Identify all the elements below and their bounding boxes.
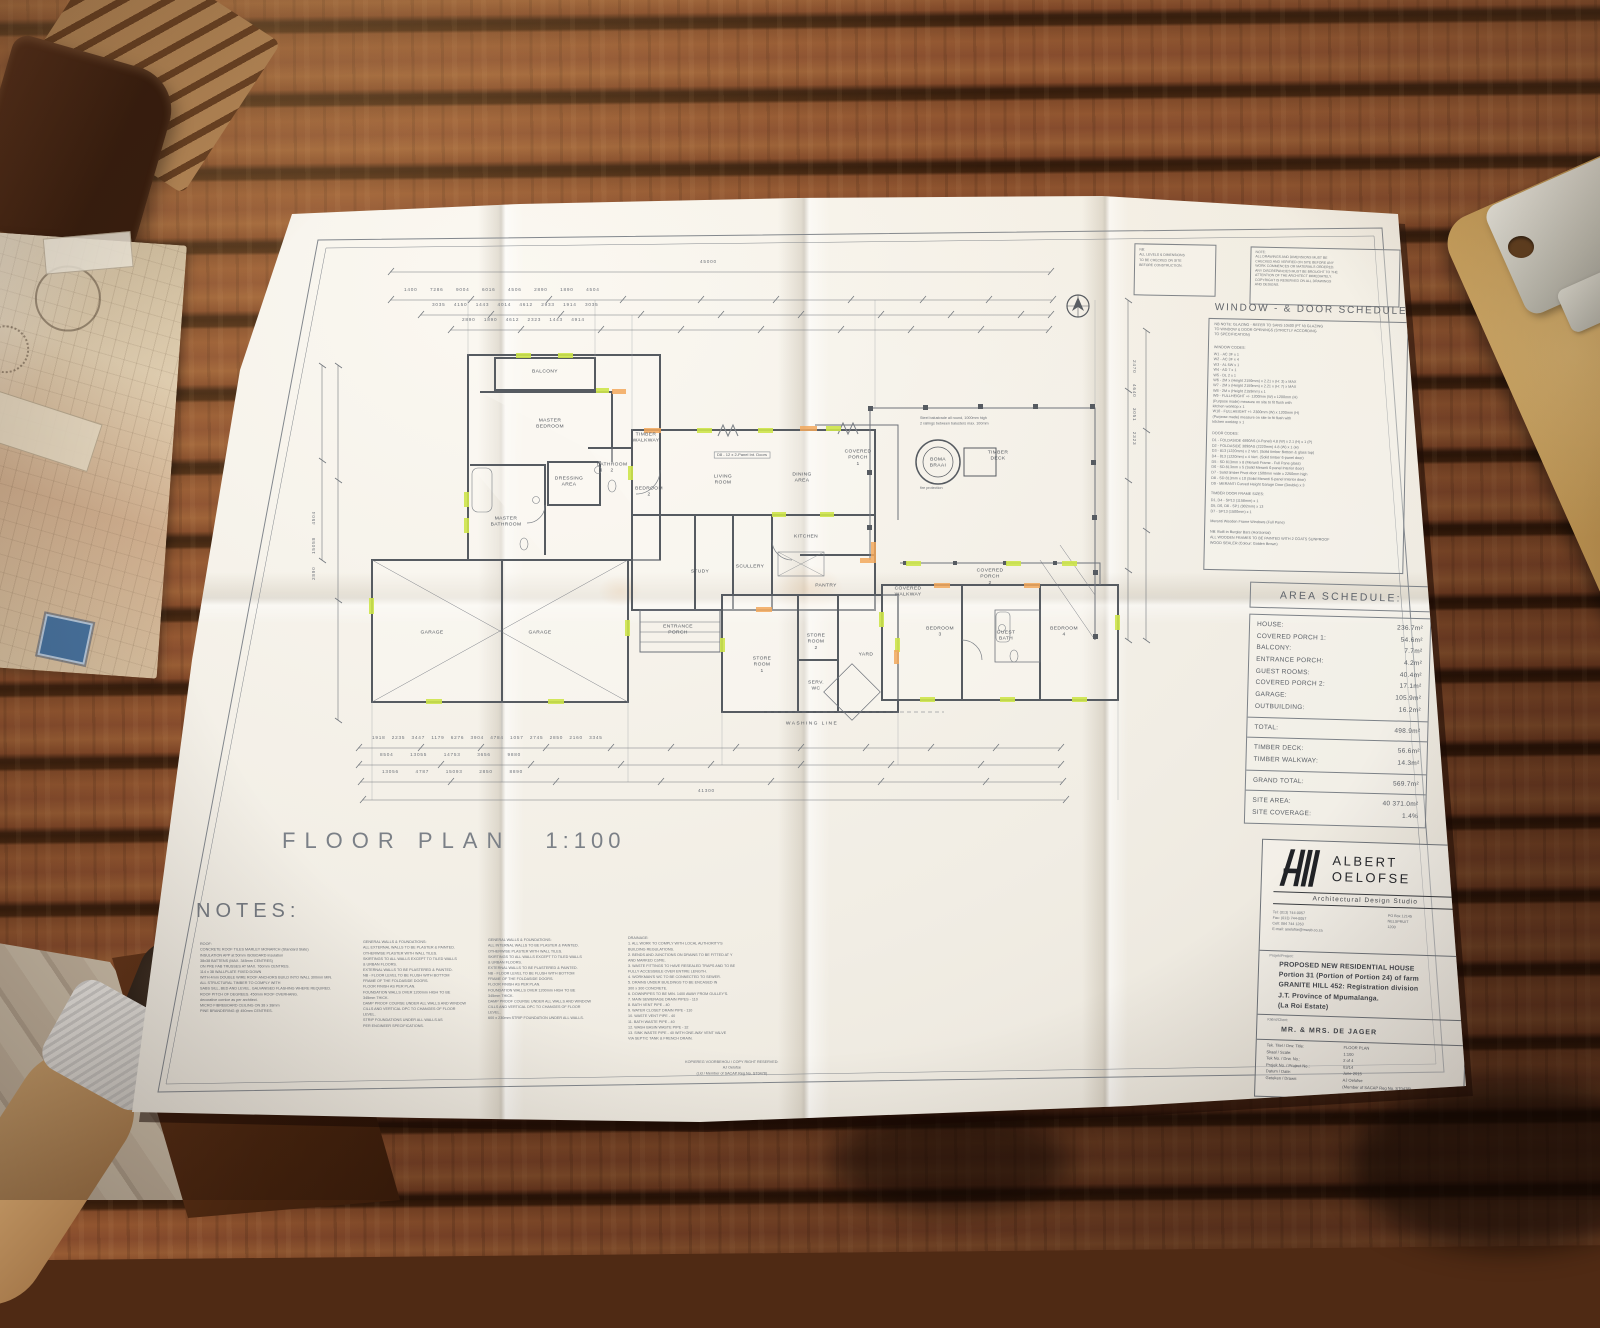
room-label: BATHROOM 2 xyxy=(597,462,628,474)
dimension-row: 13056 4787 15093 2850 8890 xyxy=(382,770,523,775)
plan-title: FLOOR PLAN1:100 xyxy=(282,828,625,854)
area-labels: GRAND TOTAL: xyxy=(1253,774,1304,787)
door-tag-annotation: D8 - 12 x 2-Panel Int. Doors xyxy=(714,452,770,459)
area-values: 56.6m² 14.3m² xyxy=(1397,746,1420,770)
area-labels: HOUSE: COVERED PORCH 1: BALCONY: ENTRANC… xyxy=(1255,619,1327,714)
meta-labels: Tek. Titel / Drw. Title: Skaal / Scale: … xyxy=(1265,1043,1312,1090)
area-schedule-group: TIMBER DECK: TIMBER WALKWAY: 56.6m² 14.3… xyxy=(1246,737,1427,774)
room-label: BEDROOM 3 xyxy=(926,626,954,638)
room-label: DRESSING AREA xyxy=(555,476,583,488)
plan-title-text: FLOOR PLAN xyxy=(282,828,511,853)
room-label: SERV. WC xyxy=(808,680,824,692)
room-label: MASTER BEDROOM xyxy=(536,418,564,430)
window-codes-list: W1 - AC 3F x 1 W2 - AC 3F x 4 W3 - AL 5W… xyxy=(1212,352,1406,429)
area-schedule: AREA SCHEDULE: HOUSE: COVERED PORCH 1: B… xyxy=(1244,582,1432,828)
room-label: TIMBER WALKWAY xyxy=(633,432,660,444)
clipboard-clip-hole xyxy=(1508,236,1534,258)
room-label: KITCHEN xyxy=(794,534,818,540)
copyright-note: KOPIEREG VOORBEHOU / COPY RIGHT RESERVED… xyxy=(645,1060,819,1077)
contact-right: PO Box 12145 NELSPRUIT 1200 xyxy=(1387,914,1430,938)
contact-left: Tel: (013) 744-0057 Fax: (013) 744-0057 … xyxy=(1272,910,1344,935)
room-label: BEDROOM 2 xyxy=(635,486,663,498)
area-values: 498.9m² xyxy=(1394,725,1420,737)
note-box-text: NB: ALL LEVELS & DIMENSIONS TO BE CHECKE… xyxy=(1139,247,1213,269)
dimension-row: 1918 2235 3447 1179 6276 3904 4784 1057 … xyxy=(372,736,603,741)
dimension-row: 3035 4150 1443 4014 4612 2933 1914 3035 xyxy=(432,303,599,308)
notes-column-walls-1: GENERAL WALLS & FOUNDATIONS: ALL EXTERNA… xyxy=(363,940,506,1029)
note-box-small: NB: ALL LEVELS & DIMENSIONS TO BE CHECKE… xyxy=(1134,243,1217,296)
room-label: LIVING ROOM xyxy=(714,474,732,486)
area-schedule-table: HOUSE: COVERED PORCH 1: BALCONY: ENTRANC… xyxy=(1244,614,1431,828)
room-label: GARAGE xyxy=(420,630,443,636)
fire-protection-note: fire protection xyxy=(920,486,994,492)
postmark-stamp-icon xyxy=(33,263,103,333)
dimension-total-top: 45000 xyxy=(700,260,717,265)
room-label: GARAGE xyxy=(528,630,551,636)
dimension-right: 2470 4640 3051 2323 xyxy=(1131,360,1136,445)
area-schedule-group: HOUSE: COVERED PORCH 1: BALCONY: ENTRANC… xyxy=(1248,615,1431,721)
vintage-map-paper xyxy=(0,231,187,678)
notes-column-walls-2: GENERAL WALLS & FOUNDATIONS: ALL INTERNA… xyxy=(488,938,631,1022)
room-label: GUEST BATH xyxy=(997,630,1016,642)
area-values: 236.7m² 54.6m² 7.7m² 4.2m² 40.4m² 17.1m²… xyxy=(1395,623,1423,717)
area-values: 569.7m² xyxy=(1393,778,1419,790)
project-description: PROPOSED NEW RESIDENTIAL HOUSE Portion 3… xyxy=(1268,960,1458,1017)
note-box-text: NOTE: ALL DRAWINGS AND DIMENSIONS MUST B… xyxy=(1255,251,1396,291)
room-label: YARD xyxy=(859,652,874,658)
room-label: BEDROOM 4 xyxy=(1050,626,1078,638)
boma-braai-circle xyxy=(916,440,996,484)
architect-name-line2: OELOFSE xyxy=(1332,869,1411,888)
plan-scale: 1:100 xyxy=(545,828,625,853)
dimension-row: 8504 13055 14753 3656 9880 xyxy=(380,753,521,758)
title-block: ALBERT OELOFSE Architectural Design Stud… xyxy=(1254,839,1472,1103)
window-door-schedule: WINDOW - & DOOR SCHEDULE NB NOTE: GLAZIN… xyxy=(1203,298,1409,584)
dimension-row: 1400 7286 9004 6016 4506 2890 1890 4504 xyxy=(404,288,600,293)
room-label: BALCONY xyxy=(532,369,558,375)
architect-contacts: Tel: (013) 744-0057 Fax: (013) 744-0057 … xyxy=(1260,908,1469,957)
room-label: DINING AREA xyxy=(792,472,811,484)
room-label: COVERED WALKWAY xyxy=(895,586,922,598)
frame-sizes-list: D1, D4 - SP13 (1158mm) x 1 D5, D6, D8 - … xyxy=(1210,498,1396,519)
schedule-intro: NB NOTE: GLAZING - REFER TO SANS 10400 (… xyxy=(1214,322,1400,341)
notes-column-drainage: DRAINAGE: 1. ALL WORK TO COMPLY WITH LOC… xyxy=(628,936,802,1042)
project-section: Projek/Project: PROPOSED NEW RESIDENTIAL… xyxy=(1258,950,1468,1020)
north-arrow-icon xyxy=(1067,295,1089,317)
meta-values: FLOOR PLAN 1:100 2 of 4 03/14 June 2015 … xyxy=(1342,1045,1419,1093)
schedule-footer: Meranti Wooden Frame Windows (Full Pane)… xyxy=(1210,519,1406,550)
dimension-row: 2890 1890 4612 2323 1443 4914 xyxy=(462,318,585,323)
room-label: MASTER BATHROOM xyxy=(491,516,522,528)
room-label: STUDY xyxy=(691,569,709,575)
room-label: COVERED PORCH 2 xyxy=(977,568,1004,586)
postage-stamp-icon xyxy=(37,614,93,665)
area-labels: SITE AREA: SITE COVERAGE: xyxy=(1252,795,1312,820)
area-schedule-group: SITE AREA: SITE COVERAGE: 40 371.0m² 1.4… xyxy=(1245,790,1426,827)
room-label: BOMA BRAAI xyxy=(930,457,946,469)
area-labels: TOTAL: xyxy=(1254,721,1278,733)
area-values: 40 371.0m² 1.4% xyxy=(1382,798,1418,822)
room-label: SCULLERY xyxy=(736,564,765,570)
room-label: STORE ROOM 1 xyxy=(753,656,772,674)
photo-of-floor-plan: { "sheet": { "plan": { "title": "FLOOR P… xyxy=(0,0,1600,1200)
dimension-left: 2890 15058 4504 xyxy=(312,511,317,580)
window-door-schedule-body: NB NOTE: GLAZING - REFER TO SANS 10400 (… xyxy=(1203,318,1408,574)
area-labels: TIMBER DECK: TIMBER WALKWAY: xyxy=(1253,742,1318,767)
plan-walls xyxy=(372,355,1118,712)
room-label: WASHING LINE xyxy=(786,721,838,727)
room-label: PANTRY xyxy=(815,583,837,589)
area-schedule-title: AREA SCHEDULE: xyxy=(1250,582,1433,613)
architect-subtitle: Architectural Design Studio xyxy=(1273,891,1457,910)
architect-name: ALBERT OELOFSE xyxy=(1332,853,1412,888)
room-label: TIMBER DECK xyxy=(988,450,1009,462)
postmark-stamp-icon xyxy=(0,324,31,375)
notes-heading: NOTES: xyxy=(196,900,300,923)
notes-column-roof: ROOF: CONCRETE ROOF TILES MARLEY MONARCH… xyxy=(200,942,361,1015)
balustrade-note: Steel balustrade all round, 1000mm high … xyxy=(920,416,1081,427)
room-label: COVERED PORCH 1 xyxy=(845,449,872,467)
architect-logo-row: ALBERT OELOFSE xyxy=(1262,840,1471,895)
door-codes-list: D1 - FOLDASIDE 4890AS (4-Panel) 4.8 (W) … xyxy=(1211,438,1407,491)
map-label-card xyxy=(43,231,134,275)
architect-logo-icon xyxy=(1278,848,1325,887)
room-label: STORE ROOM 2 xyxy=(807,633,826,651)
map-label-card xyxy=(0,390,103,472)
room-label: ENTRANCE PORCH xyxy=(663,624,693,636)
dimension-total-bottom: 41300 xyxy=(698,789,715,794)
